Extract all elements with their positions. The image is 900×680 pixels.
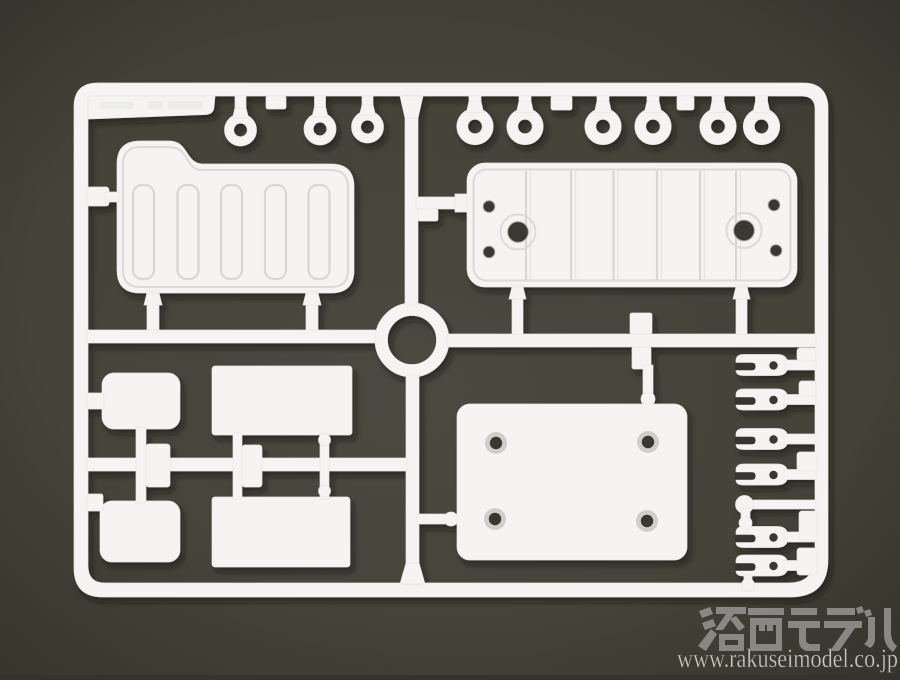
svg-text:www.rakuseimodel.co.jp: www.rakuseimodel.co.jp <box>677 644 898 673</box>
